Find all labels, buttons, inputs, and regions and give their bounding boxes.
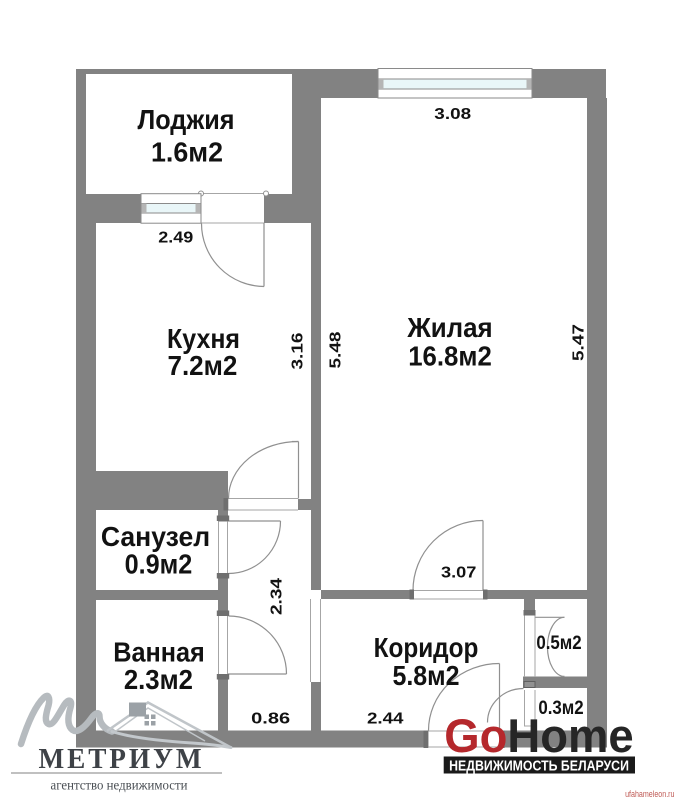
svg-text:2.44: 2.44	[367, 709, 404, 727]
svg-text:МЕТРИУМ: МЕТРИУМ	[39, 743, 205, 774]
svg-text:3.07: 3.07	[441, 563, 476, 582]
svg-text:2.3м2: 2.3м2	[124, 664, 193, 695]
svg-text:0.9м2: 0.9м2	[125, 548, 193, 580]
svg-text:1.6м2: 1.6м2	[151, 136, 223, 168]
svg-text:GoHome: GoHome	[444, 709, 633, 762]
svg-text:0.5м2: 0.5м2	[536, 632, 581, 653]
svg-text:0.86: 0.86	[251, 709, 290, 727]
svg-text:3.16: 3.16	[288, 332, 306, 369]
svg-text:НЕДВИЖИМОСТЬ БЕЛАРУСИ: НЕДВИЖИМОСТЬ БЕЛАРУСИ	[449, 757, 629, 773]
svg-text:3.08: 3.08	[434, 104, 471, 122]
svg-text:ufahameleon.ru: ufahameleon.ru	[625, 789, 674, 799]
svg-text:2.49: 2.49	[158, 228, 193, 246]
svg-text:Лоджия: Лоджия	[137, 104, 234, 136]
svg-text:5.47: 5.47	[569, 324, 587, 361]
svg-text:5.48: 5.48	[326, 331, 344, 368]
svg-text:Ванная: Ванная	[113, 636, 205, 667]
svg-text:16.8м2: 16.8м2	[408, 340, 492, 371]
svg-text:Жилая: Жилая	[406, 312, 492, 343]
svg-text:7.2м2: 7.2м2	[167, 350, 237, 381]
svg-text:2.34: 2.34	[267, 578, 285, 615]
svg-text:5.8м2: 5.8м2	[393, 660, 460, 692]
svg-text:агентство недвижимости: агентство недвижимости	[51, 777, 188, 793]
